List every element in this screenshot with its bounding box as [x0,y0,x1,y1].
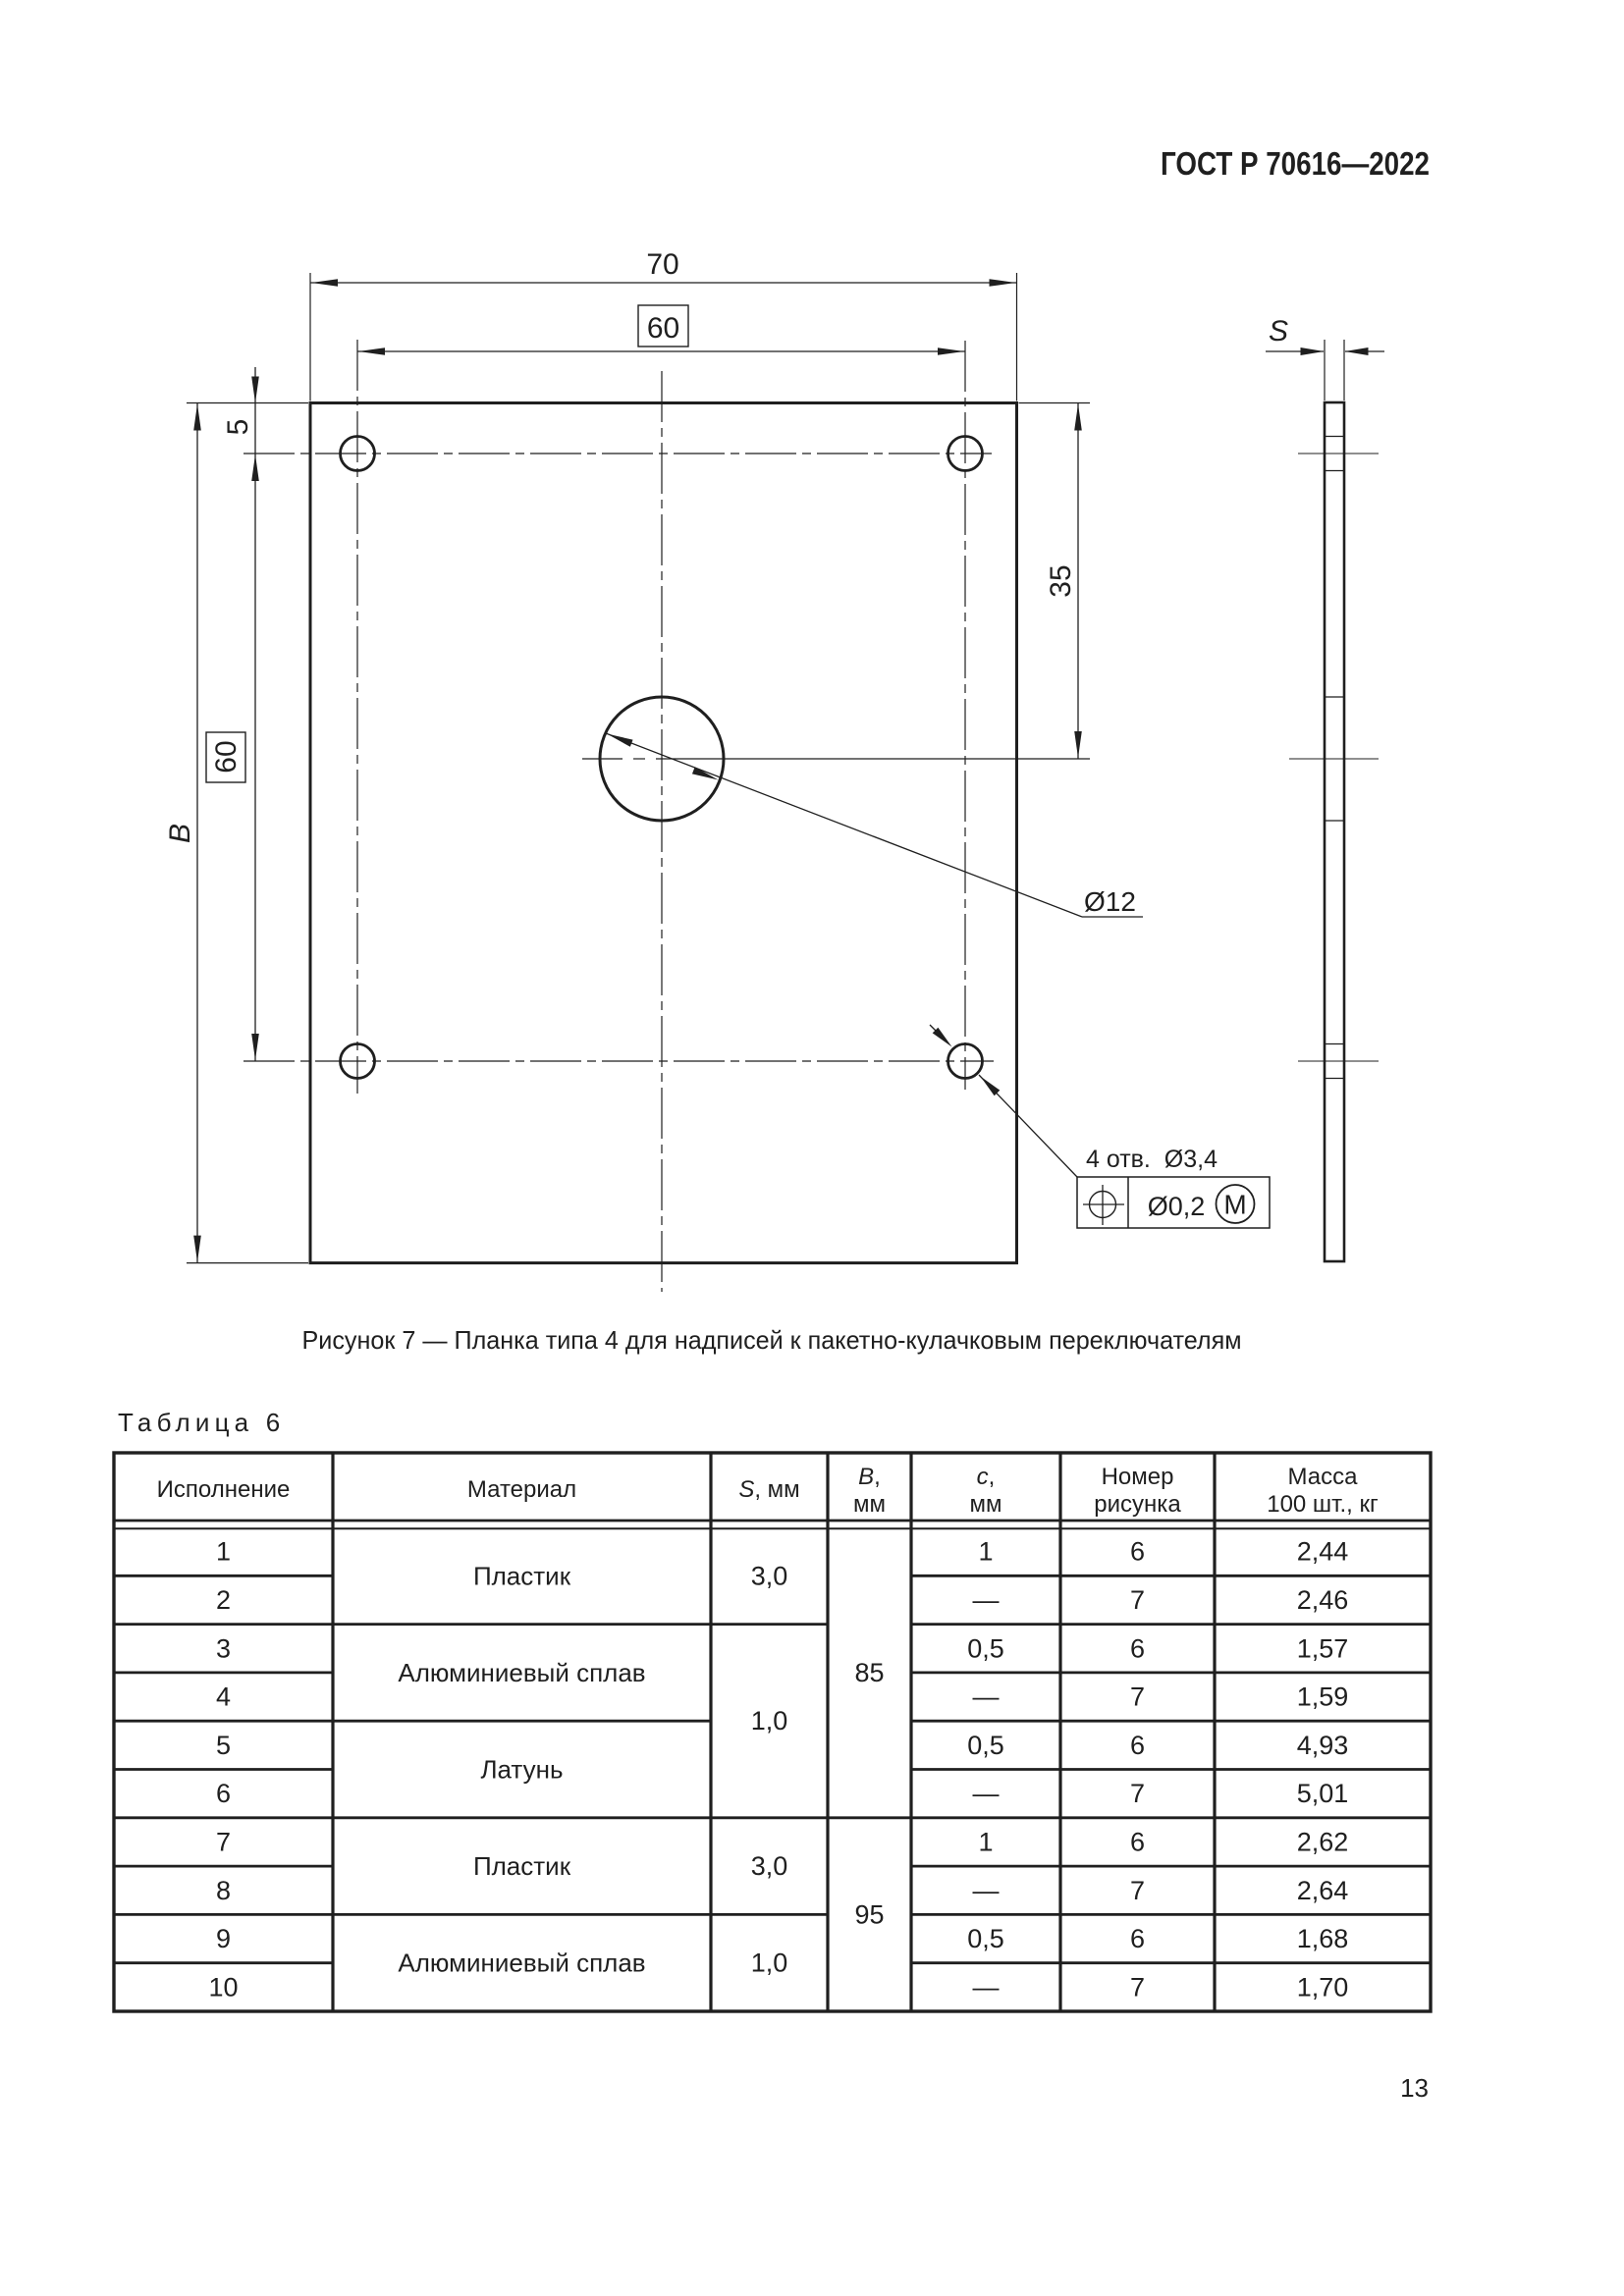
svg-text:6: 6 [1130,1924,1145,1953]
svg-text:1,57: 1,57 [1297,1633,1349,1663]
svg-text:6: 6 [1130,1827,1145,1856]
svg-text:35: 35 [1045,564,1077,597]
svg-text:70: 70 [646,248,678,281]
svg-text:6: 6 [216,1779,231,1808]
svg-text:2,64: 2,64 [1297,1876,1349,1905]
svg-text:мм: мм [970,1491,1002,1518]
svg-text:3: 3 [216,1633,231,1663]
svg-text:Латунь: Латунь [480,1755,563,1785]
svg-text:4,93: 4,93 [1297,1731,1349,1760]
svg-text:с,: с, [977,1464,996,1490]
svg-text:Материал: Материал [467,1476,576,1503]
svg-text:5: 5 [216,1731,231,1760]
svg-text:—: — [973,1585,1000,1615]
svg-text:Номер: Номер [1102,1464,1174,1490]
svg-text:6: 6 [1130,1633,1145,1663]
svg-text:2,62: 2,62 [1297,1827,1349,1856]
svg-text:Пластик: Пластик [473,1851,571,1881]
svg-text:B: B [164,824,196,843]
svg-text:1,70: 1,70 [1297,1972,1349,2002]
svg-text:Ø0,2: Ø0,2 [1148,1192,1206,1221]
svg-text:Алюминиевый сплав: Алюминиевый сплав [398,1658,645,1687]
svg-text:3,0: 3,0 [751,1851,788,1881]
svg-text:Исполнение: Исполнение [157,1476,291,1503]
svg-text:—: — [973,1682,1000,1712]
svg-text:3,0: 3,0 [751,1561,788,1590]
svg-text:1: 1 [978,1827,993,1856]
svg-text:4 отв. Ø3,4: 4 отв. Ø3,4 [1086,1146,1218,1173]
svg-text:Ø12: Ø12 [1084,886,1136,917]
svg-text:S: S [1269,315,1288,347]
svg-text:1: 1 [978,1537,993,1567]
svg-text:2,46: 2,46 [1297,1585,1349,1615]
svg-text:—: — [973,1972,1000,2002]
svg-text:9: 9 [216,1924,231,1953]
svg-text:60: 60 [210,740,243,773]
svg-text:4: 4 [216,1682,231,1712]
svg-text:10: 10 [208,1972,238,2002]
svg-text:ГОСТ Р 70616—2022: ГОСТ Р 70616—2022 [1161,145,1430,182]
svg-text:2: 2 [216,1585,231,1615]
svg-text:рисунка: рисунка [1094,1491,1181,1518]
svg-text:6: 6 [1130,1537,1145,1567]
svg-text:60: 60 [647,312,679,345]
svg-text:1,68: 1,68 [1297,1924,1349,1953]
svg-text:6: 6 [1130,1731,1145,1760]
svg-text:1,0: 1,0 [751,1706,788,1735]
svg-text:Таблица 6: Таблица 6 [118,1408,285,1437]
svg-text:5: 5 [222,419,254,436]
svg-text:Пластик: Пластик [473,1561,571,1590]
svg-text:мм: мм [853,1491,886,1518]
svg-text:95: 95 [854,1899,884,1929]
svg-text:5,01: 5,01 [1297,1779,1349,1808]
svg-text:7: 7 [1130,1779,1145,1808]
svg-text:8: 8 [216,1876,231,1905]
svg-text:0,5: 0,5 [967,1924,1004,1953]
svg-text:100 шт., кг: 100 шт., кг [1267,1491,1379,1518]
svg-text:0,5: 0,5 [967,1633,1004,1663]
svg-text:7: 7 [1130,1972,1145,2002]
svg-text:M: M [1223,1190,1246,1220]
svg-text:—: — [973,1779,1000,1808]
svg-text:S, мм: S, мм [738,1476,799,1503]
svg-text:13: 13 [1400,2073,1429,2103]
svg-text:7: 7 [1130,1682,1145,1712]
svg-text:—: — [973,1876,1000,1905]
svg-text:85: 85 [854,1658,884,1687]
svg-text:1,0: 1,0 [751,1949,788,1978]
svg-text:Рисунок 7 — Планка типа 4 для: Рисунок 7 — Планка типа 4 для надписей к… [302,1325,1242,1355]
svg-text:2,44: 2,44 [1297,1537,1349,1567]
svg-text:0,5: 0,5 [967,1731,1004,1760]
svg-text:Масса: Масса [1288,1464,1359,1490]
svg-text:7: 7 [1130,1585,1145,1615]
svg-text:1: 1 [216,1537,231,1567]
svg-text:7: 7 [216,1827,231,1856]
svg-text:1,59: 1,59 [1297,1682,1349,1712]
svg-text:B,: B, [858,1464,881,1490]
svg-text:Алюминиевый сплав: Алюминиевый сплав [398,1949,645,1978]
svg-text:7: 7 [1130,1876,1145,1905]
